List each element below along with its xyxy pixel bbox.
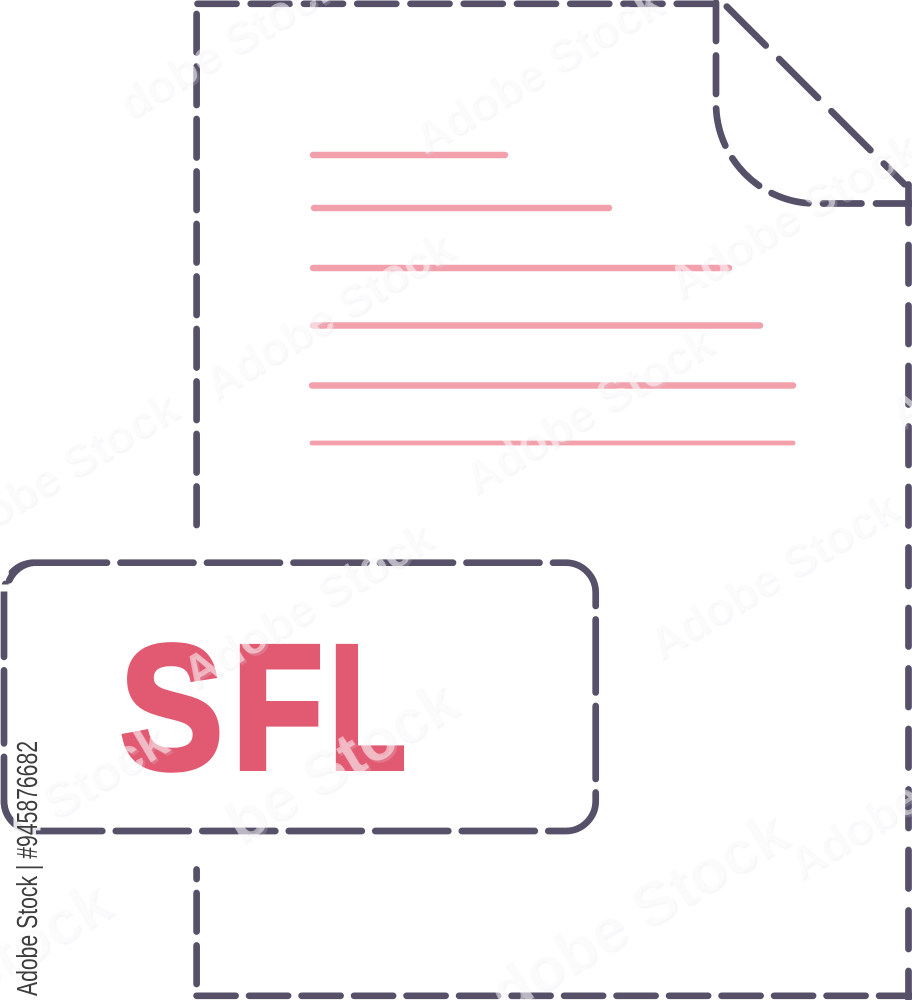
svg-text:A: A (878, 377, 912, 439)
svg-text:Adobe Stock: Adobe Stock (453, 314, 721, 504)
svg-text:Adobe Stock: Adobe Stock (638, 479, 906, 669)
svg-text:Adobe Stock: Adobe Stock (173, 509, 441, 699)
svg-text:Adobe: Adobe (778, 770, 912, 888)
svg-text:Adobe Stock: Adobe Stock (193, 219, 461, 409)
svg-text:Adobe Stock: Adobe Stock (658, 119, 912, 309)
svg-text:Adobe Stock: Adobe Stock (0, 379, 186, 569)
svg-text:Adobe Stock | #945876682: Adobe Stock | #945876682 (12, 741, 44, 996)
svg-text:Adobe Stock: Adobe Stock (403, 0, 671, 164)
svg-text:Stock: Stock (32, 711, 178, 829)
svg-text:dobe Stock: dobe Stock (108, 0, 348, 129)
svg-text:dobe Stock: dobe Stock (477, 795, 799, 1000)
svg-text:be Stock: be Stock (212, 664, 469, 857)
